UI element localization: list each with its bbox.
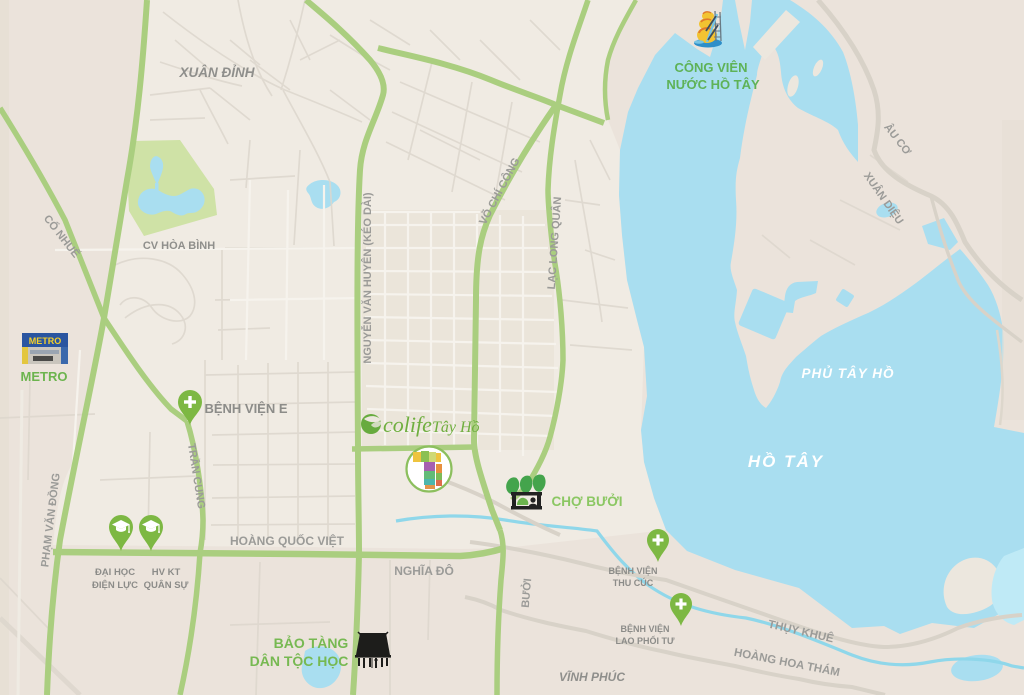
svg-text:ĐIỆN LỰC: ĐIỆN LỰC <box>92 579 138 591</box>
svg-text:CÔNG VIÊN: CÔNG VIÊN <box>675 60 748 75</box>
svg-text:QUÂN SỰ: QUÂN SỰ <box>144 579 189 591</box>
svg-text:HỒ TÂY: HỒ TÂY <box>748 452 824 471</box>
svg-text:NƯỚC HỒ TÂY: NƯỚC HỒ TÂY <box>666 77 760 92</box>
svg-text:VĨNH PHÚC: VĨNH PHÚC <box>559 669 625 684</box>
svg-text:HV KT: HV KT <box>152 567 181 578</box>
svg-text:BỆNH VIỆN: BỆNH VIỆN <box>620 623 669 634</box>
svg-text:BỆNH VIỆN E: BỆNH VIỆN E <box>204 401 287 416</box>
svg-text:ĐẠI HỌC: ĐẠI HỌC <box>95 567 135 578</box>
svg-text:PHỦ TÂY HỒ: PHỦ TÂY HỒ <box>801 366 894 381</box>
svg-text:BỆNH VIỆN: BỆNH VIỆN <box>608 565 657 576</box>
svg-text:NGUYỄN VĂN HUYÊN (KÉO DÀI): NGUYỄN VĂN HUYÊN (KÉO DÀI) <box>361 192 374 363</box>
svg-text:NGHĨA ĐÔ: NGHĨA ĐÔ <box>394 563 454 578</box>
svg-text:CHỢ BƯỞI: CHỢ BƯỞI <box>552 494 623 509</box>
svg-text:BẢO TÀNG: BẢO TÀNG <box>274 635 349 651</box>
svg-text:LAO PHỔI TƯ: LAO PHỔI TƯ <box>616 635 675 646</box>
svg-text:METRO: METRO <box>29 336 62 346</box>
svg-text:THU CÚC: THU CÚC <box>613 577 654 588</box>
svg-text:XUÂN ĐỈNH: XUÂN ĐỈNH <box>178 65 254 80</box>
svg-text:Tây Hồ: Tây Hồ <box>432 419 480 436</box>
svg-text:CV HÒA BÌNH: CV HÒA BÌNH <box>143 239 215 252</box>
svg-text:DÂN TỘC HỌC: DÂN TỘC HỌC <box>250 652 349 669</box>
svg-text:METRO: METRO <box>21 369 68 384</box>
svg-text:colife: colife <box>383 412 432 437</box>
svg-text:HOÀNG QUỐC VIỆT: HOÀNG QUỐC VIỆT <box>230 533 345 548</box>
svg-text:BƯỞI: BƯỞI <box>519 578 535 609</box>
